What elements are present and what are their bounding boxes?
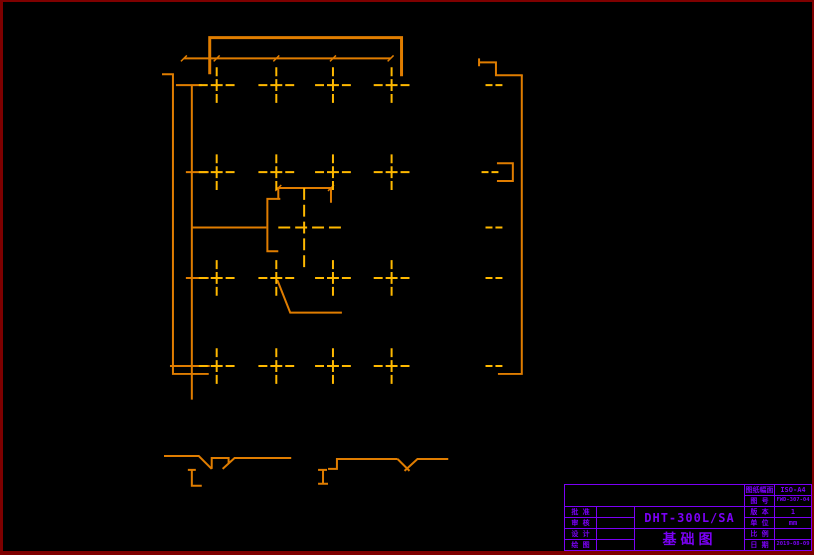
edge-centerline-dashes [482,85,503,366]
drawing-number-value: FWD-307-04 [775,496,812,507]
designed-label: 设 计 [565,529,597,540]
center-mark [258,260,294,296]
center-mark [258,348,294,384]
version-value: 1 [775,507,812,518]
detail-right-ledge [328,459,398,469]
titleblock-empty-header-cell [565,485,745,507]
center-mark [199,260,235,296]
detail-left-pocket [188,470,202,486]
foundation-plan-drawing [3,2,812,551]
main-centerline-cross [278,188,344,267]
center-mark [315,260,351,296]
checked-value [597,518,635,529]
center-mark [374,154,410,190]
date-value: 2019-08-09 [775,540,812,551]
center-mark [374,260,410,296]
cad-viewport: 图纸幅面 ISO-A4 图 号 FWD-307-04 版 本 1 单 位 mm … [0,0,814,555]
left-wall-stubs [170,85,210,366]
center-mark [315,154,351,190]
drawing-title: 基础图 [635,529,745,551]
detail-left-step [212,457,229,469]
approved-value [597,507,635,518]
sheet-size-label: 图纸幅面 [745,485,775,496]
scale-value [775,529,812,540]
right-anchor-bracket [497,163,513,181]
model-number: DHT-300L/SA [635,507,745,529]
anchor-center-marks [199,67,503,384]
right-wall-outline [498,75,522,374]
drawing-number-label: 图 号 [745,496,775,507]
date-label: 日 期 [745,540,775,551]
discharge-chute-line [277,280,342,313]
section-detail-right [318,459,448,484]
top-frame-outline [210,38,402,77]
center-bracket [267,199,280,251]
center-mark [199,348,235,384]
designed-value [597,529,635,540]
right-top-outline [479,58,523,75]
center-mark [258,154,294,190]
scale-label: 比 例 [745,529,775,540]
center-mark [374,348,410,384]
drawn-value [597,540,635,551]
center-mark [258,67,294,103]
unit-label: 单 位 [745,518,775,529]
detail-left-ledge [223,458,292,469]
detail-left-slope [164,456,212,469]
section-detail-left [164,456,291,486]
center-mark [199,67,235,103]
drawn-label: 绘 图 [565,540,597,551]
approved-label: 批 准 [565,507,597,518]
sheet-size-value: ISO-A4 [775,485,812,496]
center-mark [315,348,351,384]
left-wall-outline [162,74,209,374]
checked-label: 审 核 [565,518,597,529]
center-mark [374,67,410,103]
center-mark [199,154,235,190]
title-block: 图纸幅面 ISO-A4 图 号 FWD-307-04 版 本 1 单 位 mm … [564,484,812,551]
center-mark [315,67,351,103]
version-label: 版 本 [745,507,775,518]
detail-right-notch [398,459,449,471]
detail-right-post [318,470,328,484]
unit-value: mm [775,518,812,529]
